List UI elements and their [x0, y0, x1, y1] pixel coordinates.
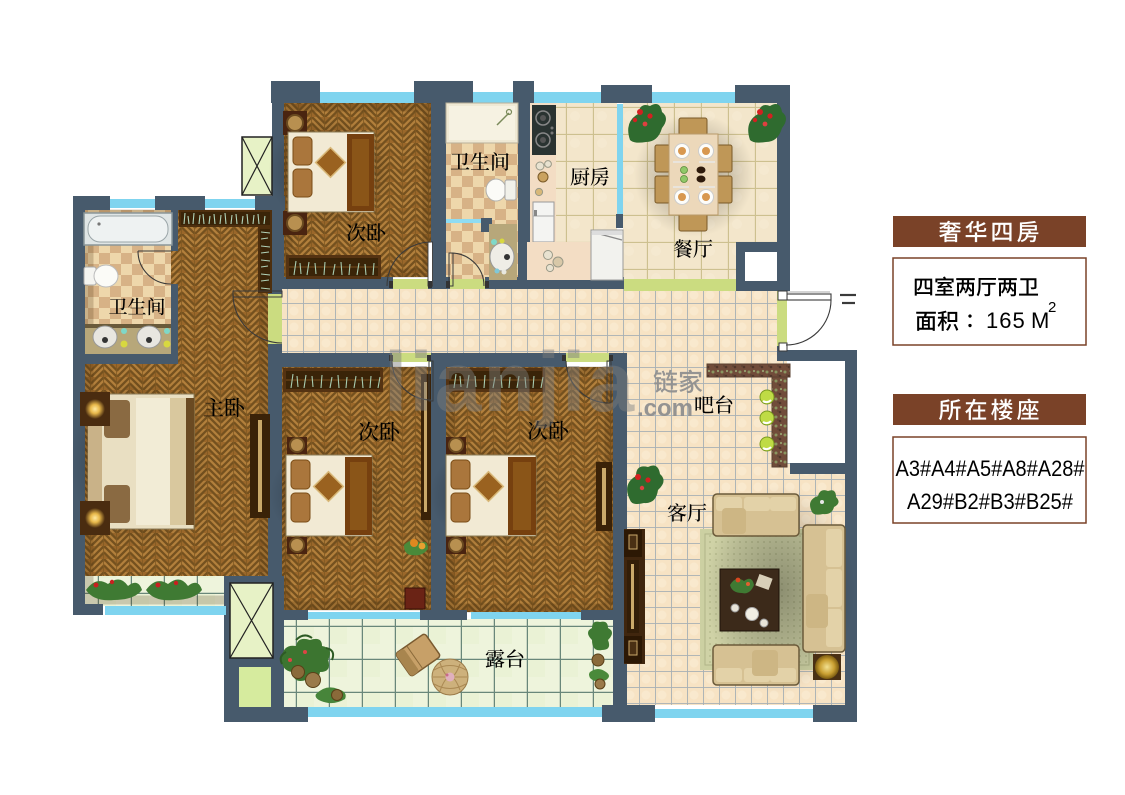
- svg-text:M: M: [1031, 308, 1049, 333]
- svg-text:2: 2: [1048, 299, 1056, 316]
- svg-text:lianjia: lianjia: [384, 335, 636, 429]
- svg-text:A29#B2#B3#B25#: A29#B2#B3#B25#: [907, 489, 1074, 514]
- svg-text:A3#A4#A5#A8#A28#: A3#A4#A5#A8#A28#: [896, 456, 1086, 481]
- svg-text:.com: .com: [637, 395, 693, 422]
- svg-text:165: 165: [986, 308, 1026, 333]
